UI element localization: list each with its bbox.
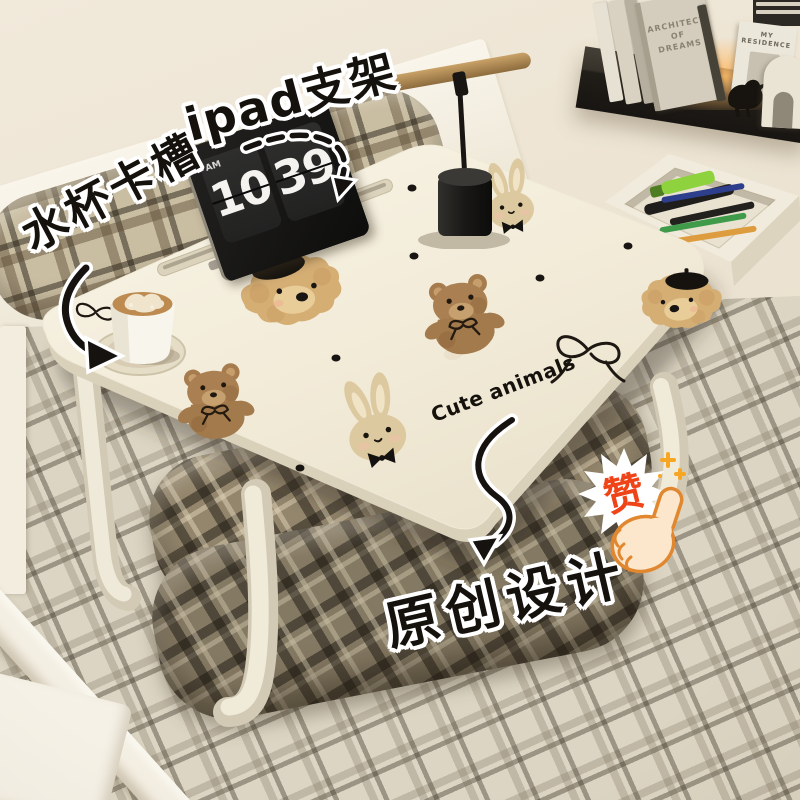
- product-photo-scene: Architect of Dreams MY RESIDENCE: [0, 0, 800, 800]
- lamp-stem: [460, 92, 465, 180]
- arrow-to-cup: [42, 262, 152, 382]
- sparkle-icon: [658, 454, 684, 478]
- table-leg-front-left: [228, 494, 263, 712]
- dashed-arrow-to-tablet: [238, 108, 368, 208]
- arrow-to-design-text: [438, 412, 558, 572]
- lamp-base: [438, 168, 492, 236]
- thumbs-up-icon: [598, 482, 698, 582]
